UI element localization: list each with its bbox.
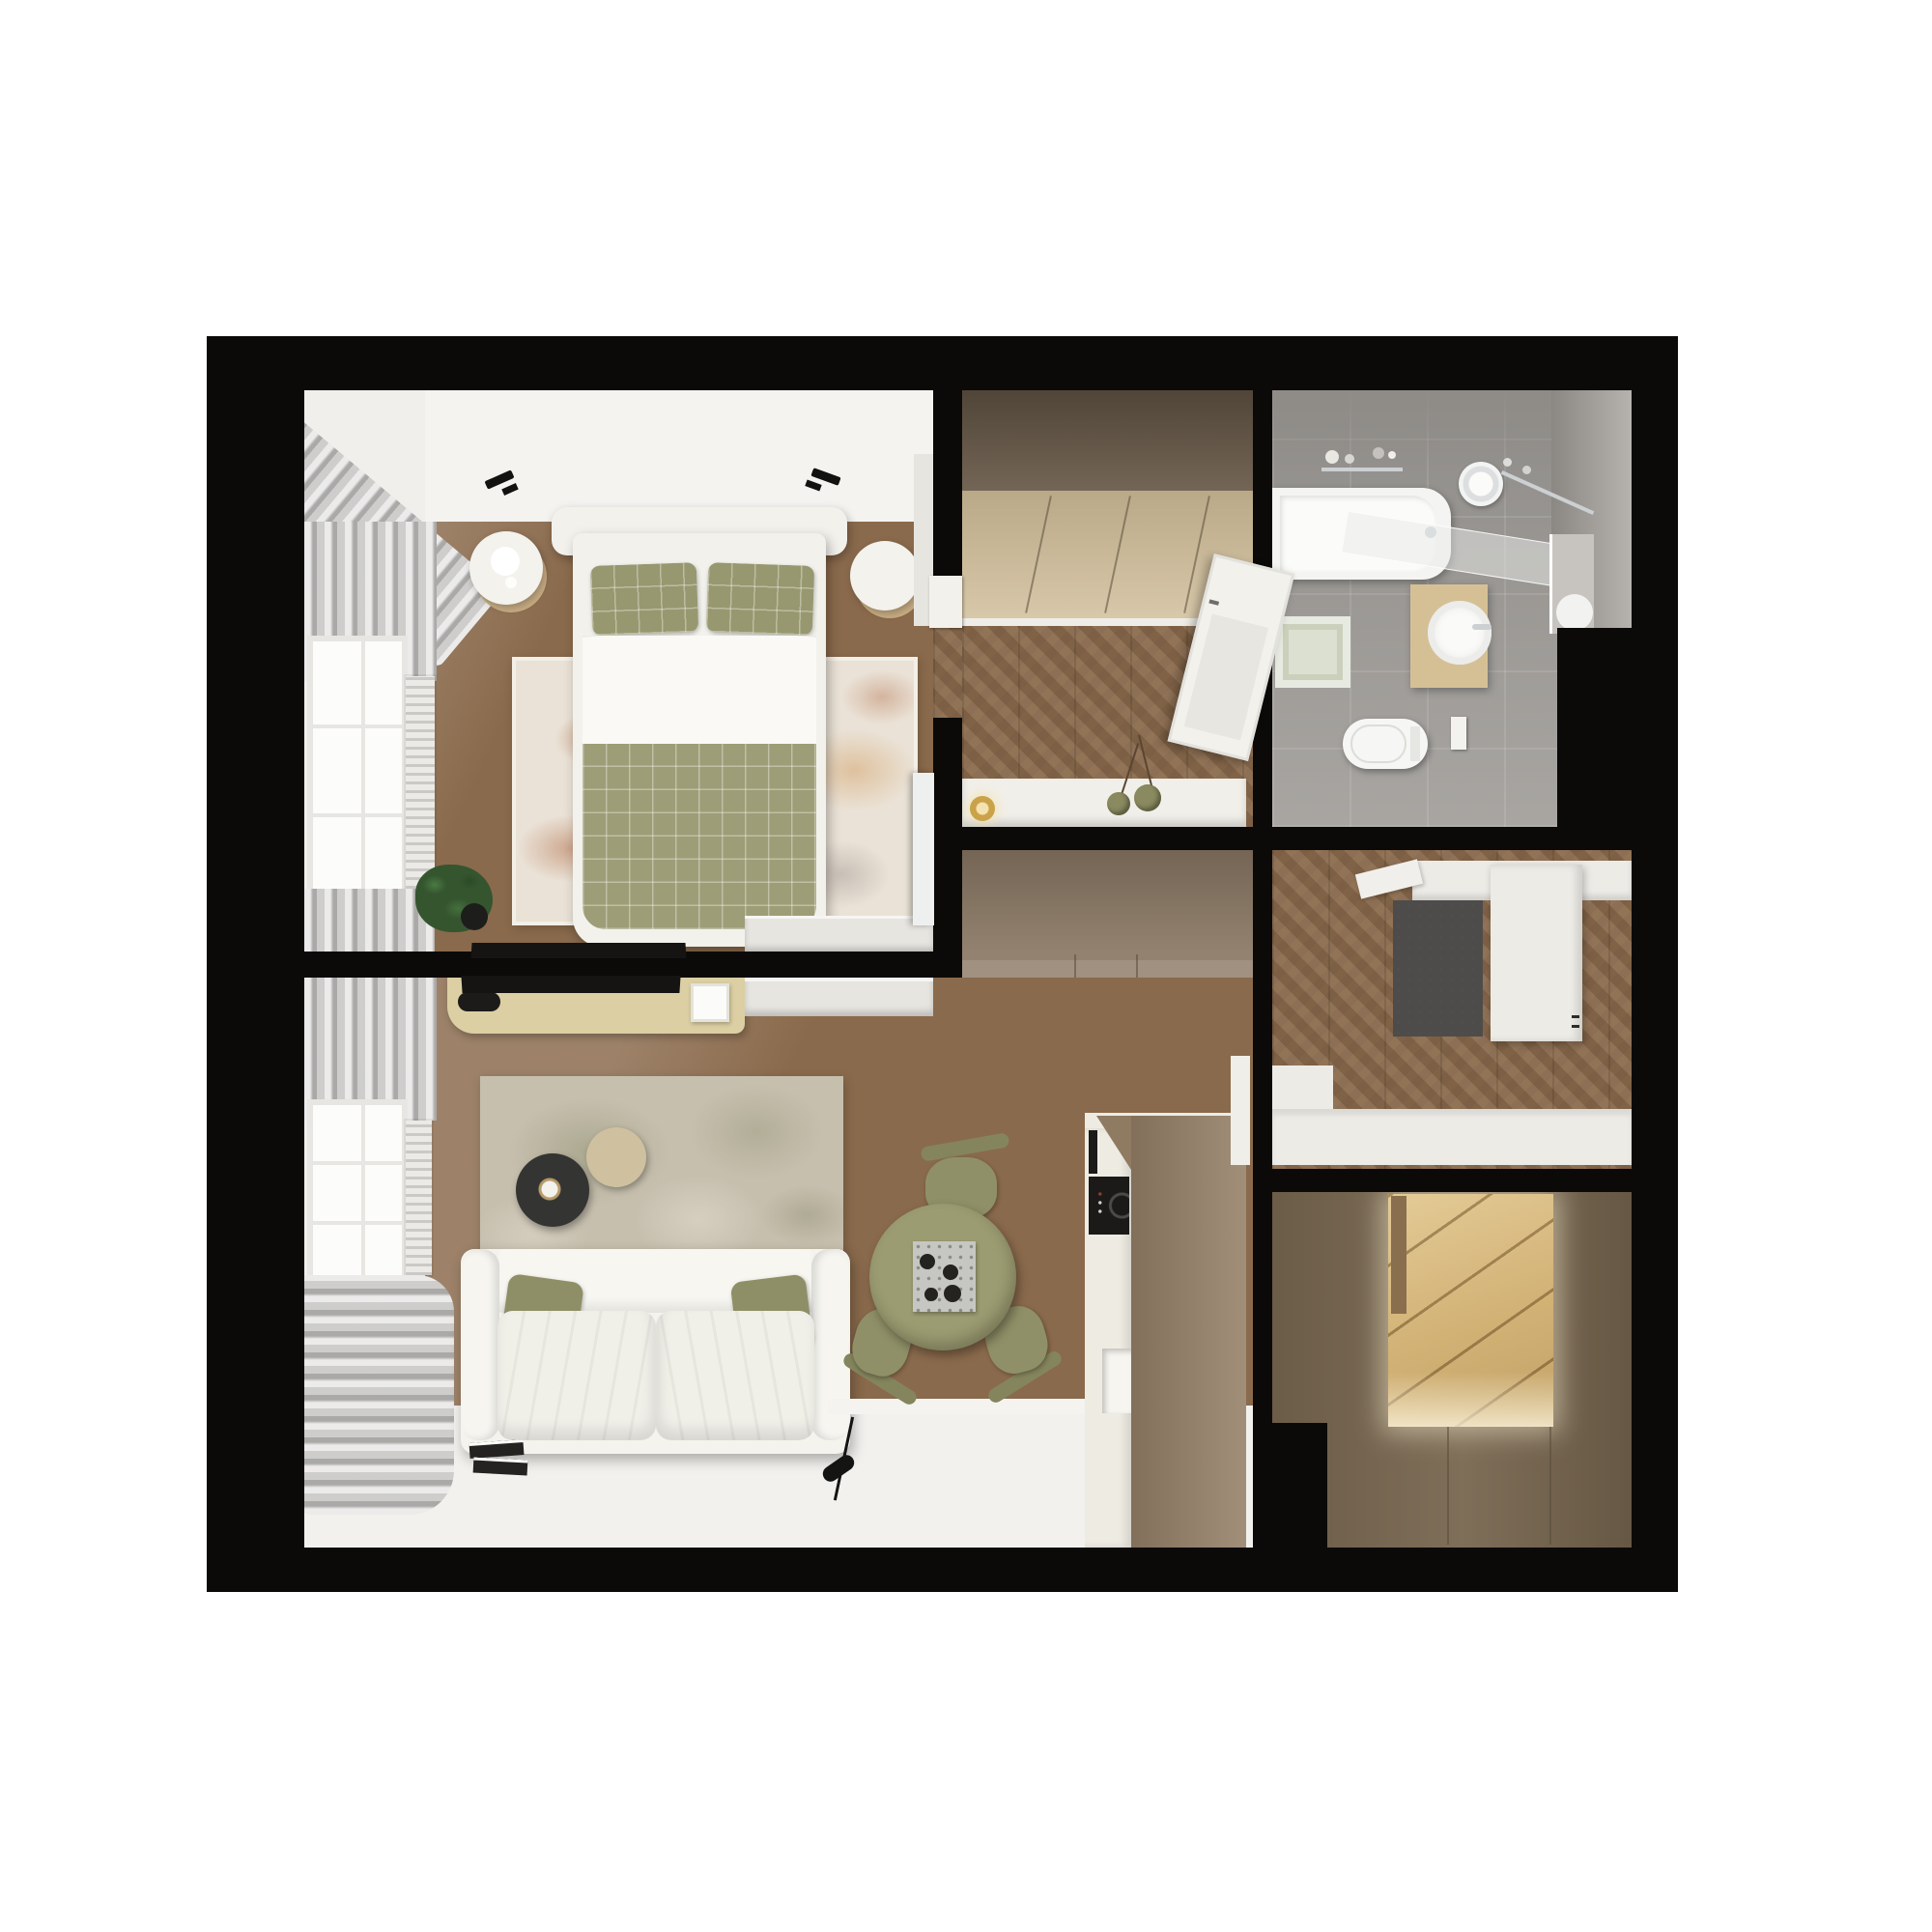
sofa-seat-left xyxy=(497,1311,656,1440)
mirror-reflection xyxy=(1556,594,1593,631)
bathroom-ceiling-lights-icon xyxy=(1503,458,1512,467)
window-mullion xyxy=(361,1105,365,1281)
floor-plan-page xyxy=(0,0,1932,1932)
bedroom-tv xyxy=(470,943,686,958)
table-lamp-icon xyxy=(970,796,995,821)
bed-sheet xyxy=(582,636,816,746)
cup-icon xyxy=(920,1254,935,1269)
bed-duvet xyxy=(582,744,816,929)
central-wardrobe-block xyxy=(962,850,1253,978)
window-mullion xyxy=(313,1161,402,1165)
kitchen-pillar xyxy=(1231,1056,1250,1165)
wardrobe-door-seam xyxy=(1025,496,1052,613)
table-decor-icon xyxy=(537,1177,562,1202)
entry-tall-cabinet xyxy=(1491,865,1582,1041)
hall-console-table xyxy=(962,779,1246,827)
bedroom-window xyxy=(307,636,408,903)
wall-outer-top xyxy=(207,336,1678,390)
remote-control-icon xyxy=(458,992,500,1011)
window-mullion xyxy=(313,813,402,817)
living-dresser xyxy=(745,978,933,1016)
wall-entry-closet xyxy=(1253,1169,1632,1192)
toiletry-bottles-icon xyxy=(1325,450,1339,464)
door-handle-icon xyxy=(1208,599,1219,605)
wall-outer-right xyxy=(1632,336,1678,1592)
sink-tap-icon xyxy=(1472,624,1492,630)
bedroom-dresser xyxy=(745,916,933,952)
induction-cooktop xyxy=(1089,1177,1129,1235)
leaning-mirror xyxy=(913,773,934,925)
wall-bedroom-hall-lower xyxy=(933,718,962,958)
round-sink xyxy=(1428,601,1492,665)
living-window xyxy=(307,1099,408,1287)
coffee-table-dark xyxy=(516,1153,589,1227)
serving-tray xyxy=(913,1241,976,1312)
wall-mirror xyxy=(1549,534,1594,634)
toilet-seat-line xyxy=(1350,724,1406,763)
bedroom-ceiling-band xyxy=(425,390,933,522)
nightstand-left-decor xyxy=(491,547,520,576)
hall-wardrobe-top xyxy=(962,390,1253,491)
sofa-seat-right xyxy=(656,1311,814,1440)
wall-closet-notch xyxy=(1253,1423,1327,1592)
living-radiator xyxy=(406,1121,432,1275)
toilet-hinge xyxy=(1410,726,1420,761)
closet-cabinet-seam xyxy=(1447,1427,1449,1545)
bed-pillow-right xyxy=(706,562,814,636)
central-block-front xyxy=(962,960,1253,978)
bath-mat xyxy=(1275,616,1350,688)
window-mullion xyxy=(313,1221,402,1225)
toiletry-shelf xyxy=(1321,468,1403,471)
kitchen-open-niche xyxy=(1102,1349,1131,1413)
door-glass-panel xyxy=(1184,613,1268,740)
bed-pillow-left xyxy=(590,562,698,636)
kitchen-block-corner xyxy=(1096,1116,1131,1170)
closet-niche-floor-glow xyxy=(1388,1372,1553,1427)
entry-bench xyxy=(1272,1109,1632,1165)
entry-bench-step xyxy=(1272,1065,1333,1114)
wall-hall-entry-horizontal xyxy=(962,827,1632,850)
wardrobe-door-seam xyxy=(1104,496,1131,613)
sofa-armrest-left xyxy=(461,1249,499,1440)
books-on-floor xyxy=(473,1458,528,1476)
bedroom-door-frame xyxy=(929,576,962,628)
doormat xyxy=(1393,900,1483,1037)
living-curtain-pool xyxy=(298,1275,454,1515)
closet-cabinet-seam xyxy=(1549,1427,1551,1545)
central-block-seam xyxy=(1136,954,1138,978)
window-mullion xyxy=(313,724,402,728)
vase-icon xyxy=(1134,784,1161,811)
baseboard xyxy=(828,1399,1085,1414)
closet-wood-edge xyxy=(1391,1196,1406,1314)
living-tv xyxy=(461,976,680,993)
kitchen-tall-block xyxy=(1131,1116,1246,1548)
toilet xyxy=(1343,719,1428,769)
bedroom-radiator xyxy=(406,676,435,889)
window-mullion xyxy=(361,641,365,897)
wall-bathroom-notch xyxy=(1557,628,1632,850)
bedroom-door-opening-floor xyxy=(933,626,962,718)
central-block-seam xyxy=(1074,954,1076,978)
wall-outer-left xyxy=(207,336,304,1592)
vase-icon xyxy=(1107,792,1130,815)
flush-panel xyxy=(1451,717,1466,750)
coffee-table-tan xyxy=(586,1127,646,1187)
cabinet-handle-icon xyxy=(1572,1015,1579,1018)
shower-head-icon xyxy=(1459,462,1503,506)
sofa xyxy=(461,1249,850,1454)
plant-pot xyxy=(461,903,488,930)
picture-frame xyxy=(691,983,729,1022)
nightstand-right xyxy=(850,541,920,611)
wall-outer-bottom xyxy=(207,1548,1678,1592)
